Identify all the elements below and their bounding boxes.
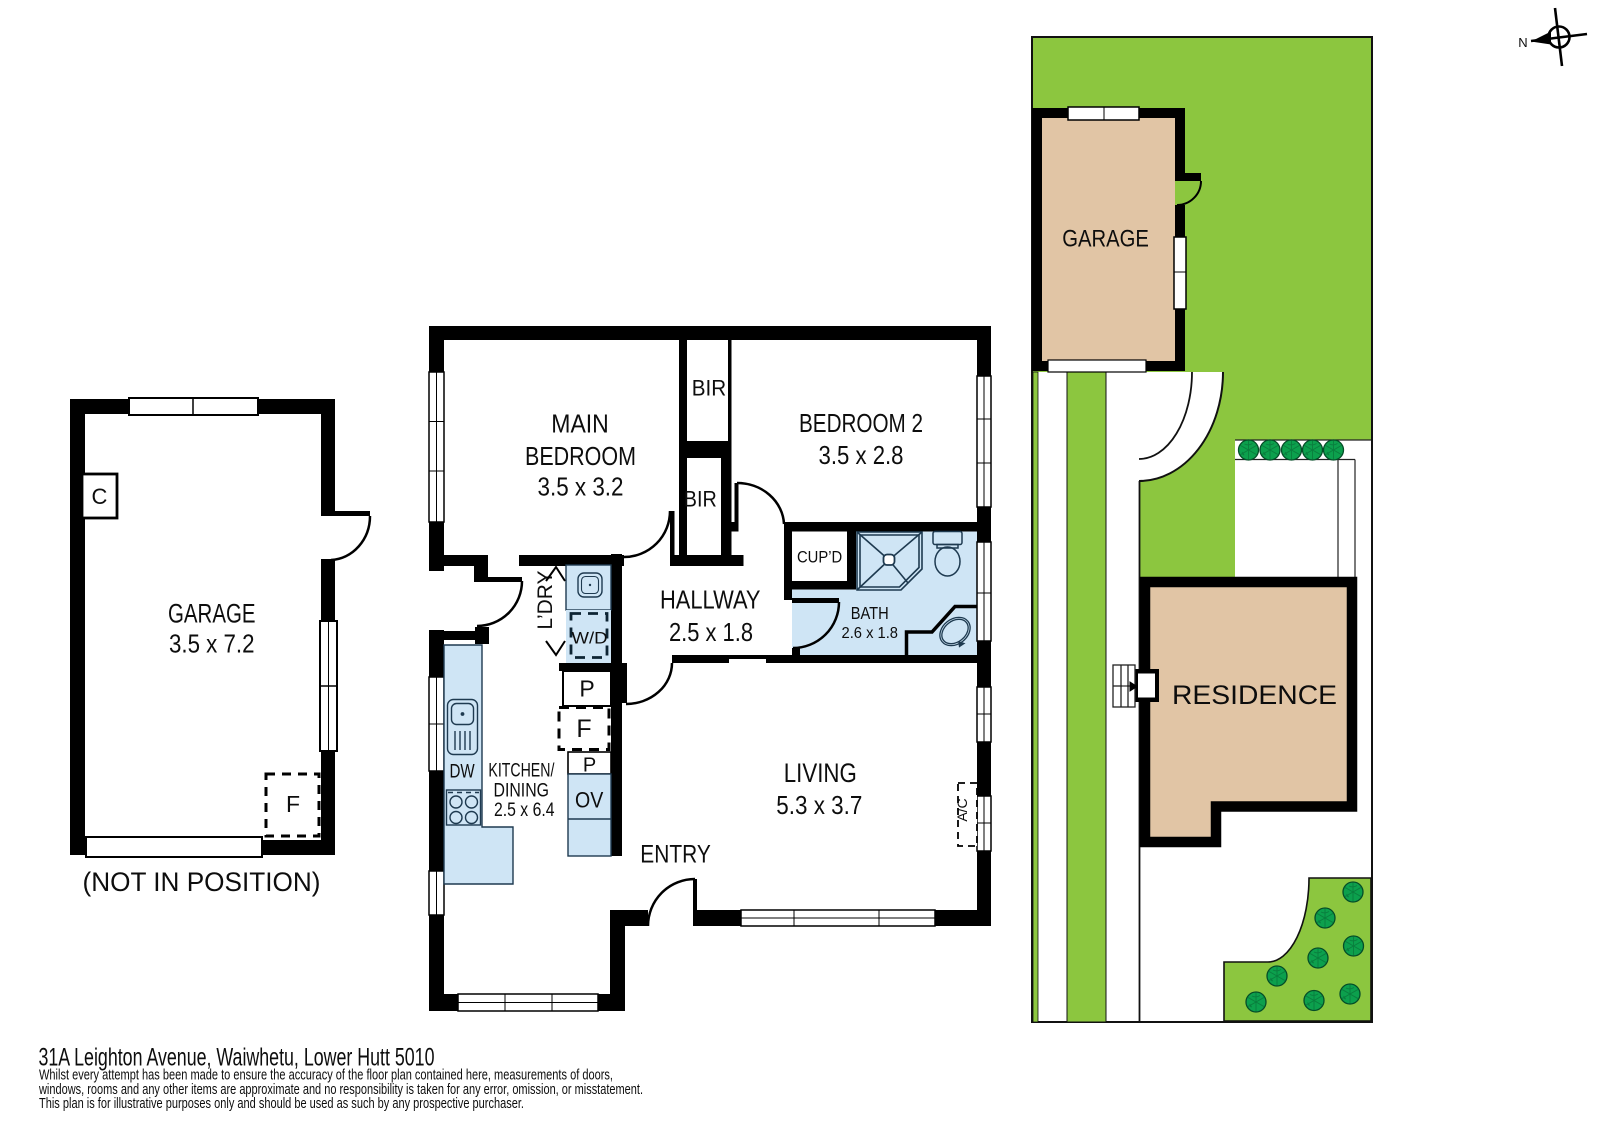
svg-text:GARAGE: GARAGE: [168, 599, 256, 629]
svg-text:3.5 x 3.2: 3.5 x 3.2: [538, 472, 624, 502]
svg-text:BIR: BIR: [692, 376, 727, 401]
svg-text:2.6 x 1.8: 2.6 x 1.8: [842, 625, 899, 642]
svg-text:F: F: [286, 791, 300, 817]
svg-text:RESIDENCE: RESIDENCE: [1172, 680, 1337, 710]
svg-text:F: F: [576, 715, 591, 743]
svg-text:BATH: BATH: [851, 603, 889, 623]
svg-text:OV: OV: [575, 787, 604, 812]
svg-text:2.5 x 6.4: 2.5 x 6.4: [494, 800, 555, 821]
svg-text:P: P: [579, 676, 594, 702]
svg-text:A/C: A/C: [954, 798, 970, 821]
svg-text:ENTRY: ENTRY: [640, 841, 711, 869]
svg-text:W/D: W/D: [572, 629, 608, 648]
svg-text:LIVING: LIVING: [784, 758, 857, 788]
svg-text:C: C: [92, 484, 108, 509]
svg-text:BEDROOM: BEDROOM: [525, 441, 636, 471]
svg-text:5.3 x 3.7: 5.3 x 3.7: [776, 790, 862, 820]
svg-text:GARAGE: GARAGE: [1062, 226, 1149, 253]
svg-text:3.5 x 7.2: 3.5 x 7.2: [169, 629, 255, 659]
svg-text:DINING: DINING: [494, 781, 550, 802]
svg-text:HALLWAY: HALLWAY: [660, 585, 761, 615]
svg-text:(NOT IN POSITION): (NOT IN POSITION): [83, 867, 321, 897]
svg-text:BIR: BIR: [684, 487, 717, 512]
svg-text:2.5 x 1.8: 2.5 x 1.8: [669, 617, 753, 647]
svg-text:KITCHEN/: KITCHEN/: [488, 760, 555, 781]
svg-text:CUP’D: CUP’D: [797, 547, 842, 566]
svg-text:MAIN: MAIN: [551, 409, 609, 439]
svg-text:3.5 x 2.8: 3.5 x 2.8: [819, 440, 904, 470]
svg-text:BEDROOM 2: BEDROOM 2: [799, 408, 923, 438]
svg-text:This plan is for illustrative: This plan is for illustrative purposes o…: [39, 1095, 524, 1112]
svg-text:N: N: [1518, 35, 1527, 50]
svg-text:L’DRY: L’DRY: [534, 570, 557, 629]
svg-text:P: P: [583, 754, 596, 776]
svg-text:DW: DW: [450, 761, 475, 782]
